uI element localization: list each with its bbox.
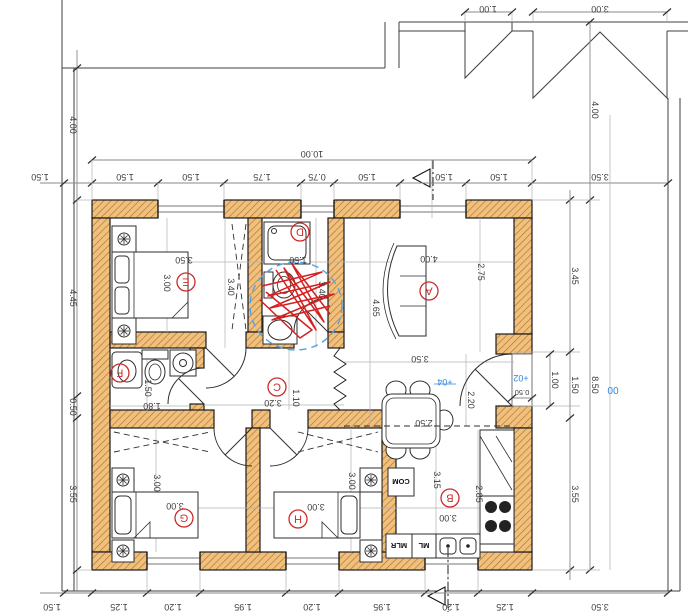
zigzag-break: [334, 348, 346, 410]
lamp-icon: [365, 545, 377, 557]
dim-a-depth-right: 2.75: [476, 263, 486, 281]
window-room-e: [158, 200, 224, 218]
dim-e-depth: 3.40: [226, 278, 236, 296]
dim-a-depth-left: 4.65: [371, 299, 381, 317]
svg-text:H: H: [294, 513, 302, 525]
level-ground: 00: [607, 384, 619, 395]
dim-overall-height: 8.50: [590, 376, 600, 394]
dim-top-gap-right: 3.50: [591, 172, 609, 182]
dim-left-3: 3.55: [68, 485, 78, 503]
wc-f-fixtures: [112, 350, 196, 388]
dim-c-width: 3.20: [264, 398, 282, 408]
dim-bottom-1: 1.25: [110, 602, 128, 612]
dim-bottom-6: 1.20: [442, 602, 460, 612]
dim-e-width: 3.50: [175, 255, 193, 265]
washer-icon: [170, 350, 196, 376]
dim-bottom-4: 1.20: [303, 602, 321, 612]
dim-d-depth: 3.40: [317, 281, 327, 299]
window-room-a: [400, 200, 466, 218]
dim-offset-top-right: 4.00: [590, 101, 600, 119]
section-marker-top: [413, 160, 433, 200]
dim-h-width: 3.00: [307, 502, 325, 512]
wardrobe-dashed-g: [114, 432, 210, 452]
svg-text:C: C: [273, 381, 281, 393]
lamp-icon: [118, 233, 130, 245]
dim-top-5: 1.50: [358, 172, 376, 182]
dim-entry-door: 1.00: [550, 371, 560, 389]
dim-a-lower: 3.50: [411, 354, 429, 364]
appliance-ml-label: ML: [418, 541, 429, 550]
appliance-mlr-label: MLR: [390, 541, 407, 550]
double-sink-icon: [436, 534, 480, 558]
dim-bottom-3: 1.95: [234, 602, 252, 612]
dim-bottom-5: 1.95: [373, 602, 391, 612]
svg-text:G: G: [180, 512, 189, 524]
dim-right-3: 3.55: [570, 485, 580, 503]
dim-e-inner: 3.00: [162, 274, 172, 292]
dim-b-depth-right: 2.85: [474, 485, 484, 503]
room-label-c: C: [268, 378, 286, 396]
dim-overall-width: 10.00: [301, 149, 324, 159]
window-room-d: [301, 200, 334, 218]
dim-b-width: 3.00: [439, 513, 457, 523]
lamp-icon: [117, 474, 129, 486]
canopy-large: [533, 31, 667, 98]
dim-bottom-gap-left: 1.50: [43, 602, 61, 612]
dim-g-depth: 3.00: [152, 474, 162, 492]
dim-top-4: 0.75: [308, 172, 326, 182]
dim-c-depth: 1.10: [291, 389, 301, 407]
dim-d-width: 1.50: [289, 255, 307, 265]
svg-text:B: B: [446, 492, 453, 504]
dim-entry-hall: 2.20: [466, 391, 476, 409]
dim-a-width: 4.00: [420, 254, 438, 264]
floor-plan-page: ML MLR COM: [0, 0, 688, 616]
dim-top-gap-left: 1.50: [31, 172, 49, 182]
dim-top-2: 1.50: [182, 172, 200, 182]
dim-left-1: 4.45: [68, 289, 78, 307]
dim-right-2: 1.50: [570, 376, 580, 394]
dim-canopy-large: 3.00: [591, 4, 609, 14]
dim-f-width: 1.80: [143, 401, 161, 411]
door-room-h: [270, 428, 308, 466]
canopy-small: [465, 22, 512, 78]
dim-top-3: 1.75: [253, 172, 271, 182]
dim-offset-top-left: 4.00: [68, 116, 78, 134]
dim-b-table: 2.50: [415, 418, 433, 428]
svg-text:A: A: [425, 285, 433, 297]
dim-entry-landing: 0.50: [515, 388, 530, 397]
level-hall: +04: [437, 377, 452, 387]
svg-text:E: E: [182, 276, 189, 288]
dim-bottom-7: 1.25: [496, 602, 514, 612]
dim-top-1: 1.50: [116, 172, 134, 182]
lamp-icon: [118, 325, 130, 337]
dim-right-1: 3.45: [570, 267, 580, 285]
dim-bottom-2: 1.20: [164, 602, 182, 612]
level-landing: +02: [513, 373, 528, 383]
dim-left-2: 0.50: [68, 398, 78, 416]
dim-canopy-small: 1.00: [479, 4, 497, 14]
bedroom-e-furniture: [112, 226, 188, 344]
wardrobe-dashed-h: [298, 432, 378, 452]
appliance-com-label: COM: [392, 477, 410, 486]
dim-top-6: 1.50: [435, 172, 453, 182]
wardrobe-dashed-e: [232, 224, 246, 330]
dim-bottom-gap-right: 3.50: [591, 602, 609, 612]
window-room-h: [286, 552, 339, 570]
svg-text:F: F: [116, 367, 123, 379]
lamp-icon: [117, 545, 129, 557]
stove-icon: [480, 496, 514, 544]
room-label-b: B: [441, 489, 459, 507]
door-room-e: [206, 348, 246, 388]
dim-f-depth: 1.50: [143, 379, 153, 397]
lamp-icon: [365, 474, 377, 486]
floor-plan-canvas: ML MLR COM: [0, 0, 688, 616]
dim-top-7: 1.50: [490, 172, 508, 182]
window-room-g: [147, 552, 200, 570]
dim-b-depth: 3.15: [432, 471, 442, 489]
dim-h-depth: 3.00: [347, 472, 357, 490]
svg-text:D: D: [296, 226, 304, 238]
